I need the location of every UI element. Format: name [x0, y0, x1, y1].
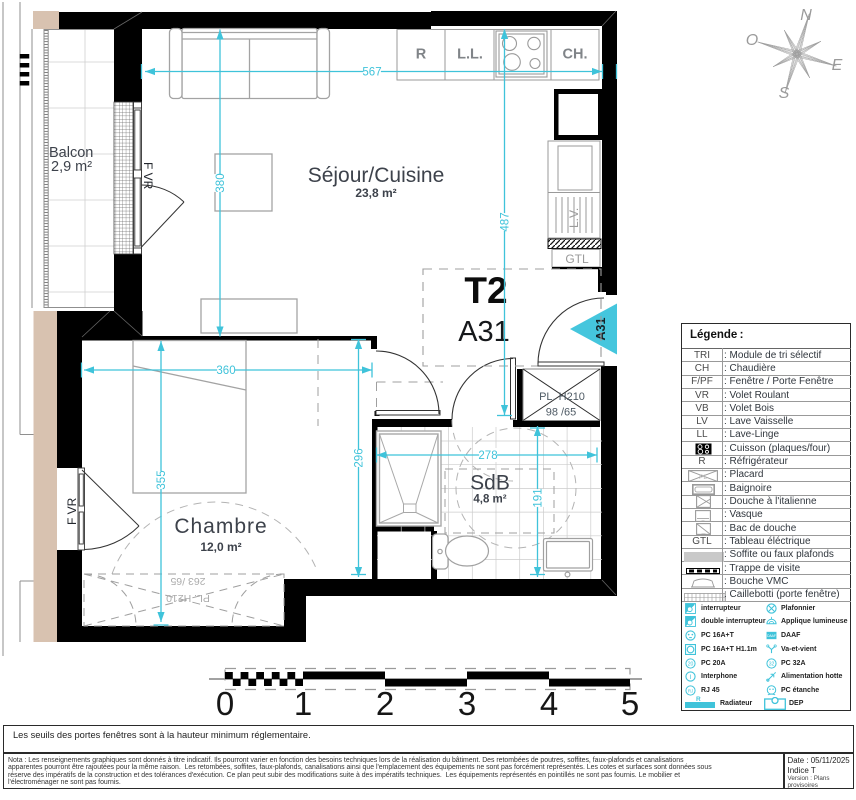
- svg-text:PL. H210: PL. H210: [166, 592, 210, 604]
- svg-text:SdB: SdB: [470, 472, 510, 495]
- svg-text:191: 191: [533, 488, 545, 507]
- svg-text:Chambre: Chambre: [174, 515, 267, 538]
- svg-text:567: 567: [362, 67, 381, 79]
- svg-text:PL: PL: [699, 474, 707, 481]
- svg-text:296: 296: [354, 448, 366, 467]
- svg-text:360: 360: [216, 365, 235, 377]
- svg-text:0: 0: [216, 685, 234, 722]
- svg-text:L.L.: L.L.: [457, 47, 483, 63]
- svg-text:1: 1: [294, 685, 312, 722]
- svg-text:F VR: F VR: [65, 497, 79, 525]
- svg-text:2,9 m²: 2,9 m²: [51, 159, 92, 175]
- svg-text:N: N: [800, 7, 812, 24]
- svg-text:Séjour/Cuisine: Séjour/Cuisine: [308, 164, 445, 187]
- svg-text:L.V.: L.V.: [567, 208, 581, 228]
- svg-text:380: 380: [215, 173, 227, 192]
- svg-text:O: O: [746, 32, 758, 49]
- svg-text:12,0 m²: 12,0 m²: [200, 540, 241, 554]
- svg-text:263 /65: 263 /65: [170, 575, 205, 587]
- svg-text:E: E: [832, 57, 843, 74]
- svg-text:RJ: RJ: [688, 688, 693, 693]
- svg-text:278: 278: [478, 450, 497, 462]
- svg-text:4,8 m²: 4,8 m²: [473, 494, 506, 506]
- svg-text:487: 487: [500, 212, 512, 231]
- svg-text:T2: T2: [464, 270, 507, 311]
- svg-text:5: 5: [621, 685, 639, 722]
- svg-text:32: 32: [769, 661, 775, 667]
- svg-text:A31: A31: [458, 316, 510, 348]
- svg-text:GTL: GTL: [565, 252, 589, 266]
- svg-text:98 /65: 98 /65: [546, 407, 577, 419]
- svg-text:355: 355: [156, 470, 168, 489]
- svg-text:23,8 m²: 23,8 m²: [355, 186, 396, 200]
- svg-text:PL. H210: PL. H210: [539, 391, 585, 403]
- svg-text:2: 2: [376, 685, 394, 722]
- svg-text:4: 4: [540, 685, 558, 722]
- svg-text:DAAF: DAAF: [767, 634, 776, 638]
- svg-text:I: I: [690, 674, 692, 681]
- svg-text:R: R: [416, 47, 427, 63]
- svg-text:CH.: CH.: [563, 47, 588, 63]
- svg-text:20: 20: [688, 661, 694, 667]
- svg-text:3: 3: [458, 685, 476, 722]
- svg-text:S: S: [779, 85, 790, 102]
